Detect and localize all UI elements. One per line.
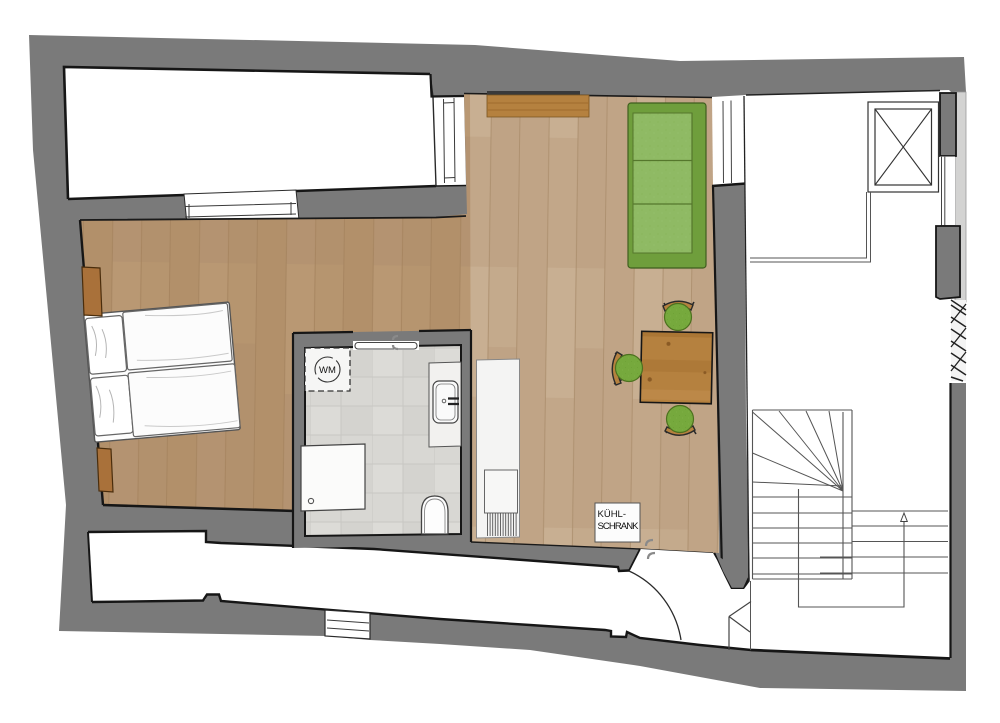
svg-text:WM: WM: [319, 365, 336, 376]
svg-text:SCHRANK: SCHRANK: [598, 521, 640, 532]
svg-text:KÜHL-: KÜHL-: [598, 509, 627, 520]
